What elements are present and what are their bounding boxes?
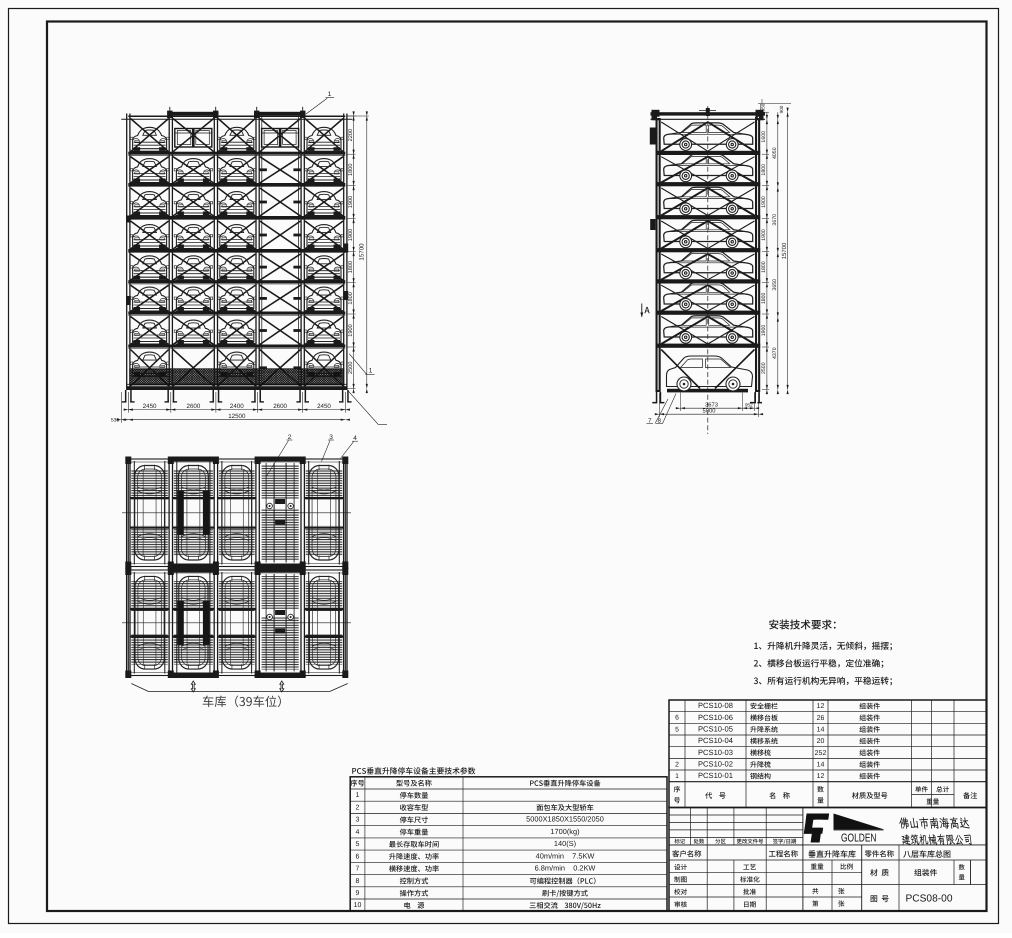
svg-text:1900: 1900 [348, 229, 354, 241]
svg-text:5: 5 [675, 726, 679, 733]
svg-text:5: 5 [356, 841, 360, 848]
svg-text:1700(kg): 1700(kg) [550, 827, 579, 836]
svg-text:6: 6 [675, 715, 679, 722]
svg-text:5000: 5000 [703, 408, 716, 415]
svg-text:5000X1850X1550/2050: 5000X1850X1550/2050 [526, 815, 604, 824]
svg-text:952: 952 [745, 403, 753, 408]
svg-text:3673: 3673 [705, 402, 718, 409]
svg-text:252: 252 [815, 750, 827, 757]
svg-text:2500: 2500 [761, 362, 767, 374]
svg-text:15700: 15700 [781, 242, 788, 259]
svg-text:8: 8 [356, 878, 360, 885]
svg-text:20: 20 [817, 738, 825, 745]
svg-text:2450: 2450 [143, 403, 157, 410]
svg-text:1: 1 [356, 792, 360, 799]
svg-text:1900: 1900 [348, 196, 354, 208]
svg-text:1800: 1800 [761, 261, 767, 273]
svg-text:4370: 4370 [772, 347, 778, 359]
svg-text:9: 9 [356, 890, 360, 897]
svg-text:1600: 1600 [761, 131, 767, 143]
svg-text:6.8m/min 0.2KW: 6.8m/min 0.2KW [535, 864, 596, 873]
svg-text:2: 2 [356, 804, 360, 811]
svg-text:1900: 1900 [761, 196, 767, 208]
svg-text:1800: 1800 [348, 164, 354, 176]
svg-text:PCS10-04: PCS10-04 [698, 736, 733, 745]
svg-text:PCS10-03: PCS10-03 [698, 748, 733, 757]
svg-text:6: 6 [356, 853, 360, 860]
svg-text:26: 26 [817, 715, 825, 722]
svg-text:GOLDEN: GOLDEN [841, 833, 877, 845]
svg-text:1900: 1900 [761, 325, 767, 337]
svg-text:4: 4 [356, 829, 360, 836]
svg-text:PCS08-00: PCS08-00 [905, 894, 952, 905]
svg-text:350: 350 [761, 103, 766, 111]
svg-text:1900: 1900 [348, 324, 354, 336]
svg-text:2600: 2600 [273, 403, 287, 410]
svg-text:12: 12 [817, 773, 825, 780]
svg-text:PCS10-02: PCS10-02 [698, 760, 733, 769]
svg-text:1800: 1800 [348, 261, 354, 273]
svg-text:1800: 1800 [761, 293, 767, 305]
svg-text:2500: 2500 [348, 362, 354, 374]
svg-text:PCS10-01: PCS10-01 [698, 771, 733, 780]
svg-text:14: 14 [817, 727, 825, 734]
svg-text:PCS10-06: PCS10-06 [698, 713, 733, 722]
svg-text:2: 2 [675, 761, 679, 768]
svg-text:1: 1 [328, 91, 332, 98]
svg-text:10: 10 [354, 902, 362, 909]
svg-text:1800: 1800 [348, 292, 354, 304]
svg-text:40m/min 7.5KW: 40m/min 7.5KW [536, 851, 595, 860]
svg-text:900: 900 [779, 105, 784, 113]
svg-text:1: 1 [675, 773, 679, 780]
svg-text:14: 14 [817, 762, 825, 769]
svg-text:7: 7 [648, 417, 652, 424]
svg-text:15700: 15700 [359, 243, 366, 261]
svg-text:2600: 2600 [187, 403, 201, 410]
svg-text:2450: 2450 [317, 403, 331, 410]
svg-text:3: 3 [356, 817, 360, 824]
svg-text:PCS10-08: PCS10-08 [698, 701, 733, 710]
svg-text:3650: 3650 [772, 279, 778, 291]
svg-text:4050: 4050 [772, 147, 778, 159]
svg-text:12500: 12500 [228, 413, 246, 420]
svg-text:3670: 3670 [772, 214, 778, 226]
svg-text:7: 7 [356, 866, 360, 873]
svg-text:1800: 1800 [761, 164, 767, 176]
svg-text:1: 1 [369, 368, 373, 375]
svg-text:2400: 2400 [230, 403, 244, 410]
svg-text:140(S): 140(S) [554, 839, 576, 848]
svg-text:1900: 1900 [761, 229, 767, 241]
svg-text:PCS10-05: PCS10-05 [698, 725, 733, 734]
svg-text:530: 530 [111, 418, 120, 424]
svg-text:12: 12 [817, 703, 825, 710]
svg-text:2200: 2200 [348, 129, 354, 141]
